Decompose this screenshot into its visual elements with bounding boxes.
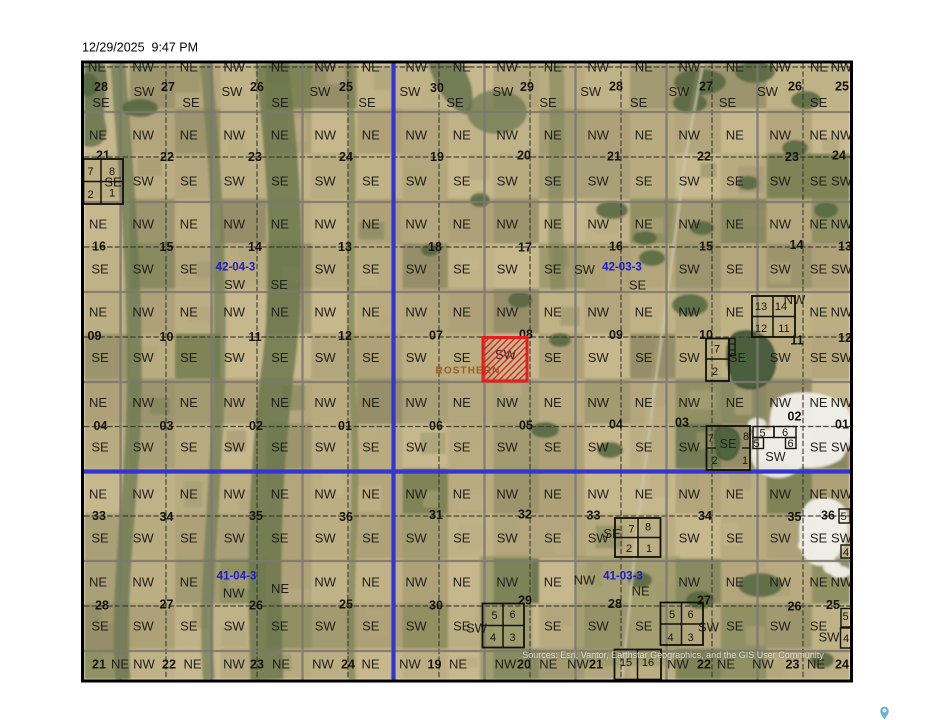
svg-text:NE: NE [726, 487, 744, 502]
svg-text:SW: SW [831, 440, 853, 455]
svg-text:SE: SE [544, 174, 562, 189]
svg-text:NE: NE [544, 305, 562, 320]
svg-text:SW: SW [133, 174, 155, 189]
svg-text:5: 5 [759, 428, 765, 440]
svg-text:SW: SW [497, 440, 519, 455]
svg-text:NW: NW [678, 217, 700, 232]
svg-text:4: 4 [843, 547, 849, 559]
svg-text:7: 7 [707, 433, 713, 445]
svg-text:NW: NW [769, 395, 791, 410]
svg-text:SW: SW [770, 350, 792, 365]
svg-text:NE: NE [809, 395, 827, 410]
svg-text:NW: NW [223, 657, 245, 672]
svg-text:5: 5 [842, 611, 848, 623]
svg-text:SE: SE [453, 350, 471, 365]
svg-text:SW: SW [669, 84, 691, 99]
svg-text:NE: NE [632, 584, 650, 599]
svg-text:NE: NE [180, 395, 198, 410]
svg-text:SW: SW [831, 174, 853, 189]
svg-text:03: 03 [675, 416, 689, 430]
svg-text:SE: SE [810, 262, 828, 277]
svg-text:SW: SW [406, 531, 428, 546]
svg-text:NE: NE [89, 128, 107, 143]
svg-text:SE: SE [635, 619, 653, 634]
svg-text:06: 06 [429, 419, 443, 433]
svg-text:7: 7 [87, 166, 93, 178]
svg-text:NW: NW [769, 487, 791, 502]
svg-text:NE: NE [271, 487, 289, 502]
svg-text:SW: SW [224, 531, 246, 546]
svg-text:1: 1 [109, 188, 115, 200]
svg-text:NE: NE [726, 217, 744, 232]
svg-text:SE: SE [271, 440, 289, 455]
svg-text:SW: SW [134, 84, 156, 99]
svg-text:SE: SE [271, 277, 289, 292]
svg-text:NW: NW [314, 575, 336, 590]
svg-text:NW: NW [496, 487, 518, 502]
svg-text:24: 24 [341, 658, 355, 672]
svg-text:NW: NW [587, 128, 609, 143]
svg-text:02: 02 [788, 410, 802, 424]
svg-text:19: 19 [428, 658, 442, 672]
svg-text:NE: NE [726, 575, 744, 590]
svg-text:NE: NE [362, 305, 380, 320]
svg-text:SW: SW [406, 262, 428, 277]
svg-text:23: 23 [250, 658, 264, 672]
svg-text:5: 5 [491, 610, 497, 622]
svg-text:SW: SW [588, 619, 610, 634]
svg-text:12/29/2025 9:47 PM: 12/29/2025 9:47 PM [82, 41, 198, 55]
svg-text:10: 10 [160, 330, 174, 344]
svg-text:26: 26 [249, 599, 263, 613]
svg-text:NW: NW [831, 575, 853, 590]
svg-text:14: 14 [248, 240, 262, 254]
svg-text:SW: SW [679, 350, 701, 365]
svg-text:42-03-3: 42-03-3 [602, 262, 642, 274]
svg-text:27: 27 [160, 598, 174, 612]
svg-text:SE: SE [635, 174, 653, 189]
svg-text:SE: SE [453, 531, 471, 546]
svg-text:2: 2 [87, 189, 93, 201]
svg-text:NW: NW [587, 395, 609, 410]
svg-text:SE: SE [539, 95, 557, 110]
svg-text:16: 16 [92, 240, 106, 254]
svg-text:24: 24 [832, 149, 846, 163]
svg-text:SE: SE [453, 262, 471, 277]
svg-text:NW: NW [678, 305, 700, 320]
svg-text:SW: SW [315, 350, 337, 365]
svg-text:NW: NW [496, 575, 518, 590]
svg-text:SE: SE [635, 350, 653, 365]
svg-text:NE: NE [635, 305, 653, 320]
svg-text:5: 5 [669, 609, 675, 621]
svg-text:NE: NE [180, 575, 198, 590]
svg-text:NW: NW [132, 487, 154, 502]
svg-text:NE: NE [362, 487, 380, 502]
svg-text:NE: NE [544, 575, 562, 590]
svg-text:SW: SW [224, 277, 246, 292]
svg-text:NW: NW [314, 217, 336, 232]
svg-text:1: 1 [742, 455, 748, 467]
svg-text:NE: NE [809, 575, 827, 590]
svg-text:4: 4 [490, 632, 496, 644]
svg-text:NW: NW [496, 395, 518, 410]
svg-text:SE: SE [91, 350, 109, 365]
svg-text:6: 6 [509, 609, 515, 621]
svg-text:SW: SW [406, 619, 428, 634]
svg-text:NW: NW [312, 657, 334, 672]
svg-text:2: 2 [711, 455, 717, 467]
svg-text:NW: NW [496, 305, 518, 320]
svg-text:NW: NW [223, 217, 245, 232]
svg-text:SE: SE [180, 531, 198, 546]
svg-text:SE: SE [810, 95, 828, 110]
svg-text:32: 32 [518, 508, 532, 522]
svg-text:NW: NW [132, 217, 154, 232]
svg-text:SE: SE [544, 440, 562, 455]
svg-text:NE: NE [183, 657, 201, 672]
svg-text:NW: NW [831, 395, 853, 410]
svg-text:35: 35 [788, 510, 802, 524]
svg-text:SW: SW [770, 174, 792, 189]
svg-text:7: 7 [628, 524, 634, 536]
svg-text:5: 5 [840, 511, 846, 523]
svg-text:SE: SE [629, 278, 647, 293]
svg-text:SW: SW [224, 350, 246, 365]
svg-text:NE: NE [89, 395, 107, 410]
svg-text:NW: NW [132, 128, 154, 143]
svg-text:SE: SE [729, 350, 747, 365]
svg-text:NW: NW [405, 128, 427, 143]
svg-text:SW: SW [770, 262, 792, 277]
svg-text:NE: NE [809, 487, 827, 502]
svg-text:SW: SW [310, 84, 332, 99]
svg-text:4: 4 [667, 632, 673, 644]
svg-text:21: 21 [96, 149, 110, 163]
svg-text:SW: SW [757, 84, 779, 99]
svg-text:NW: NW [405, 575, 427, 590]
svg-text:NW: NW [132, 395, 154, 410]
svg-text:05: 05 [519, 419, 533, 433]
svg-text:15: 15 [699, 240, 713, 254]
svg-text:NW: NW [314, 487, 336, 502]
svg-text:NE: NE [453, 217, 471, 232]
svg-text:SE: SE [271, 350, 289, 365]
svg-text:SE: SE [635, 440, 653, 455]
svg-text:SW: SW [831, 350, 853, 365]
svg-text:NE: NE [453, 575, 471, 590]
svg-text:NE: NE [180, 305, 198, 320]
svg-text:SE: SE [603, 526, 621, 541]
svg-text:SE: SE [544, 350, 562, 365]
svg-text:23: 23 [785, 150, 799, 164]
svg-text:NE: NE [635, 395, 653, 410]
svg-text:NW: NW [678, 128, 700, 143]
svg-text:SW: SW [770, 531, 792, 546]
svg-text:SE: SE [271, 174, 289, 189]
svg-text:NW: NW [133, 657, 155, 672]
svg-text:28: 28 [94, 80, 108, 94]
svg-text:6: 6 [687, 609, 693, 621]
svg-text:SW: SW [770, 619, 792, 634]
svg-text:NW: NW [831, 217, 853, 232]
svg-text:SE: SE [182, 95, 200, 110]
svg-text:25: 25 [835, 80, 849, 94]
svg-text:NW: NW [495, 657, 517, 672]
svg-text:NE: NE [809, 217, 827, 232]
svg-text:NE: NE [453, 395, 471, 410]
svg-text:SW: SW [315, 531, 337, 546]
svg-text:13: 13 [838, 240, 852, 254]
svg-text:NW: NW [314, 305, 336, 320]
svg-text:09: 09 [609, 328, 623, 342]
svg-text:NE: NE [89, 217, 107, 232]
svg-text:NW: NW [223, 395, 245, 410]
svg-text:21: 21 [607, 150, 621, 164]
svg-text:SW: SW [588, 350, 610, 365]
svg-text:16: 16 [609, 240, 623, 254]
svg-text:NE: NE [271, 395, 289, 410]
svg-text:4: 4 [843, 633, 849, 645]
svg-text:SW: SW [133, 350, 155, 365]
svg-text:03: 03 [160, 419, 174, 433]
svg-text:NE: NE [89, 305, 107, 320]
svg-text:NE: NE [726, 305, 744, 320]
svg-text:SW: SW [315, 619, 337, 634]
svg-text:29: 29 [520, 80, 534, 94]
svg-text:NE: NE [111, 657, 129, 672]
svg-text:35: 35 [249, 509, 263, 523]
svg-text:NW: NW [405, 305, 427, 320]
svg-text:NE: NE [272, 657, 290, 672]
svg-text:NW: NW [678, 395, 700, 410]
svg-text:SW: SW [679, 440, 701, 455]
svg-text:NW: NW [223, 586, 245, 601]
svg-text:SW: SW [133, 531, 155, 546]
svg-text:25: 25 [826, 598, 840, 612]
svg-text:02: 02 [249, 419, 263, 433]
svg-text:SE: SE [726, 531, 744, 546]
svg-text:11: 11 [790, 334, 803, 348]
svg-text:NW: NW [223, 128, 245, 143]
svg-text:SW: SW [497, 262, 519, 277]
svg-text:2: 2 [712, 366, 718, 378]
svg-text:8: 8 [109, 166, 115, 178]
svg-text:SE: SE [453, 440, 471, 455]
svg-text:SE: SE [810, 350, 828, 365]
svg-text:NE: NE [271, 581, 289, 596]
svg-text:SW: SW [224, 619, 246, 634]
svg-text:SW: SW [224, 174, 246, 189]
svg-text:27: 27 [697, 594, 711, 608]
svg-text:26: 26 [788, 80, 802, 94]
svg-text:24: 24 [835, 658, 849, 672]
svg-text:NW: NW [769, 575, 791, 590]
svg-text:13: 13 [755, 301, 767, 313]
svg-text:SW: SW [222, 84, 244, 99]
svg-text:26: 26 [788, 600, 802, 614]
svg-text:SE: SE [726, 174, 744, 189]
svg-text:09: 09 [88, 329, 102, 343]
svg-text:SW: SW [406, 350, 428, 365]
svg-text:NW: NW [587, 217, 609, 232]
svg-text:NW: NW [405, 217, 427, 232]
svg-text:22: 22 [160, 150, 174, 164]
svg-text:SE: SE [91, 262, 109, 277]
svg-text:13: 13 [338, 240, 352, 254]
svg-text:NE: NE [726, 395, 744, 410]
svg-text:19: 19 [430, 150, 444, 164]
svg-text:NW: NW [831, 487, 853, 502]
svg-text:SW: SW [574, 262, 596, 277]
svg-text:22: 22 [162, 658, 176, 672]
svg-text:11: 11 [248, 330, 261, 344]
svg-text:NW: NW [405, 487, 427, 502]
svg-text:29: 29 [518, 594, 532, 608]
svg-text:20: 20 [517, 149, 531, 163]
svg-text:SE: SE [726, 262, 744, 277]
svg-text:NE: NE [449, 657, 467, 672]
svg-text:SE: SE [362, 440, 380, 455]
svg-text:NE: NE [809, 305, 827, 320]
svg-text:SW: SW [315, 262, 337, 277]
svg-text:5: 5 [753, 438, 759, 450]
svg-text:NE: NE [89, 575, 107, 590]
svg-text:SW: SW [588, 174, 610, 189]
svg-text:36: 36 [339, 510, 353, 524]
svg-text:42-04-3: 42-04-3 [216, 262, 256, 274]
svg-text:18: 18 [428, 240, 442, 254]
svg-text:SE: SE [180, 619, 198, 634]
svg-text:NE: NE [89, 487, 107, 502]
svg-text:NW: NW [496, 217, 518, 232]
svg-text:NE: NE [271, 305, 289, 320]
svg-text:28: 28 [95, 599, 109, 613]
svg-text:SE: SE [180, 440, 198, 455]
svg-text:NW: NW [496, 128, 518, 143]
svg-text:SE: SE [544, 619, 562, 634]
svg-text:SW: SW [679, 531, 701, 546]
svg-text:SW: SW [493, 84, 515, 99]
svg-text:NW: NW [399, 657, 421, 672]
svg-text:SE: SE [271, 95, 289, 110]
svg-text:04: 04 [609, 418, 623, 432]
svg-text:NW: NW [314, 128, 336, 143]
svg-text:NE: NE [544, 217, 562, 232]
svg-text:27: 27 [161, 80, 175, 94]
svg-text:SE: SE [362, 619, 380, 634]
svg-text:NE: NE [726, 128, 744, 143]
svg-text:22: 22 [697, 150, 711, 164]
svg-text:SE: SE [810, 174, 828, 189]
svg-text:6: 6 [787, 438, 793, 450]
svg-text:SW: SW [679, 174, 701, 189]
svg-text:SE: SE [446, 95, 464, 110]
svg-text:2: 2 [626, 543, 632, 555]
svg-text:SW: SW [406, 440, 428, 455]
svg-text:7: 7 [714, 344, 720, 356]
svg-text:24: 24 [339, 150, 353, 164]
svg-text:NE: NE [635, 217, 653, 232]
svg-text:30: 30 [430, 81, 444, 95]
svg-text:07: 07 [429, 329, 443, 343]
svg-text:SE: SE [544, 531, 562, 546]
svg-text:NE: NE [180, 487, 198, 502]
svg-text:NW: NW [831, 128, 853, 143]
svg-text:SE: SE [726, 619, 744, 634]
svg-text:NE: NE [180, 217, 198, 232]
svg-text:NW: NW [223, 487, 245, 502]
svg-text:NE: NE [453, 305, 471, 320]
svg-text:Sources: Esri, Vantor, Earthst: Sources: Esri, Vantor, Earthstar Geograp… [522, 650, 824, 660]
svg-text:SW: SW [315, 440, 337, 455]
svg-text:SE: SE [358, 95, 376, 110]
svg-text:01: 01 [835, 418, 849, 432]
svg-text:SW: SW [406, 174, 428, 189]
svg-text:41-03-3: 41-03-3 [603, 571, 643, 583]
svg-text:SE: SE [271, 531, 289, 546]
svg-text:12: 12 [755, 323, 767, 335]
svg-text:26: 26 [250, 80, 264, 94]
svg-text:SW: SW [224, 440, 246, 455]
svg-text:34: 34 [160, 510, 174, 524]
svg-text:SE: SE [180, 174, 198, 189]
svg-text:SE: SE [180, 262, 198, 277]
svg-text:NE: NE [453, 128, 471, 143]
svg-text:SE: SE [92, 95, 110, 110]
svg-text:8: 8 [645, 522, 651, 534]
svg-text:NE: NE [809, 128, 827, 143]
svg-text:14: 14 [775, 301, 787, 313]
svg-text:17: 17 [518, 241, 532, 255]
svg-text:12: 12 [838, 331, 852, 345]
svg-text:NW: NW [587, 305, 609, 320]
svg-text:SW: SW [765, 450, 785, 464]
svg-text:NE: NE [544, 395, 562, 410]
svg-text:NE: NE [362, 217, 380, 232]
svg-text:NE: NE [180, 128, 198, 143]
svg-text:NW: NW [314, 395, 336, 410]
svg-text:NE: NE [361, 657, 379, 672]
svg-text:SW: SW [819, 630, 841, 645]
svg-text:SW: SW [497, 531, 519, 546]
svg-text:NW: NW [678, 575, 700, 590]
svg-text:NW: NW [574, 573, 596, 588]
svg-text:21: 21 [92, 658, 106, 672]
svg-text:NW: NW [405, 395, 427, 410]
svg-text:NW: NW [769, 128, 791, 143]
svg-text:28: 28 [609, 80, 623, 94]
svg-text:NE: NE [271, 128, 289, 143]
svg-text:SW: SW [133, 619, 155, 634]
svg-text:SE: SE [719, 95, 737, 110]
svg-text:SE: SE [544, 262, 562, 277]
svg-text:04: 04 [94, 419, 108, 433]
svg-text:23: 23 [248, 150, 262, 164]
svg-text:SE: SE [362, 174, 380, 189]
svg-text:NW: NW [678, 487, 700, 502]
svg-text:NE: NE [635, 128, 653, 143]
svg-text:SE: SE [810, 440, 828, 455]
svg-text:NE: NE [544, 128, 562, 143]
svg-text:SW: SW [400, 84, 422, 99]
svg-text:SW: SW [831, 531, 853, 546]
svg-text:NE: NE [362, 128, 380, 143]
svg-text:33: 33 [587, 509, 601, 523]
svg-text:NE: NE [544, 487, 562, 502]
svg-text:NW: NW [769, 217, 791, 232]
svg-text:SW: SW [466, 621, 488, 636]
